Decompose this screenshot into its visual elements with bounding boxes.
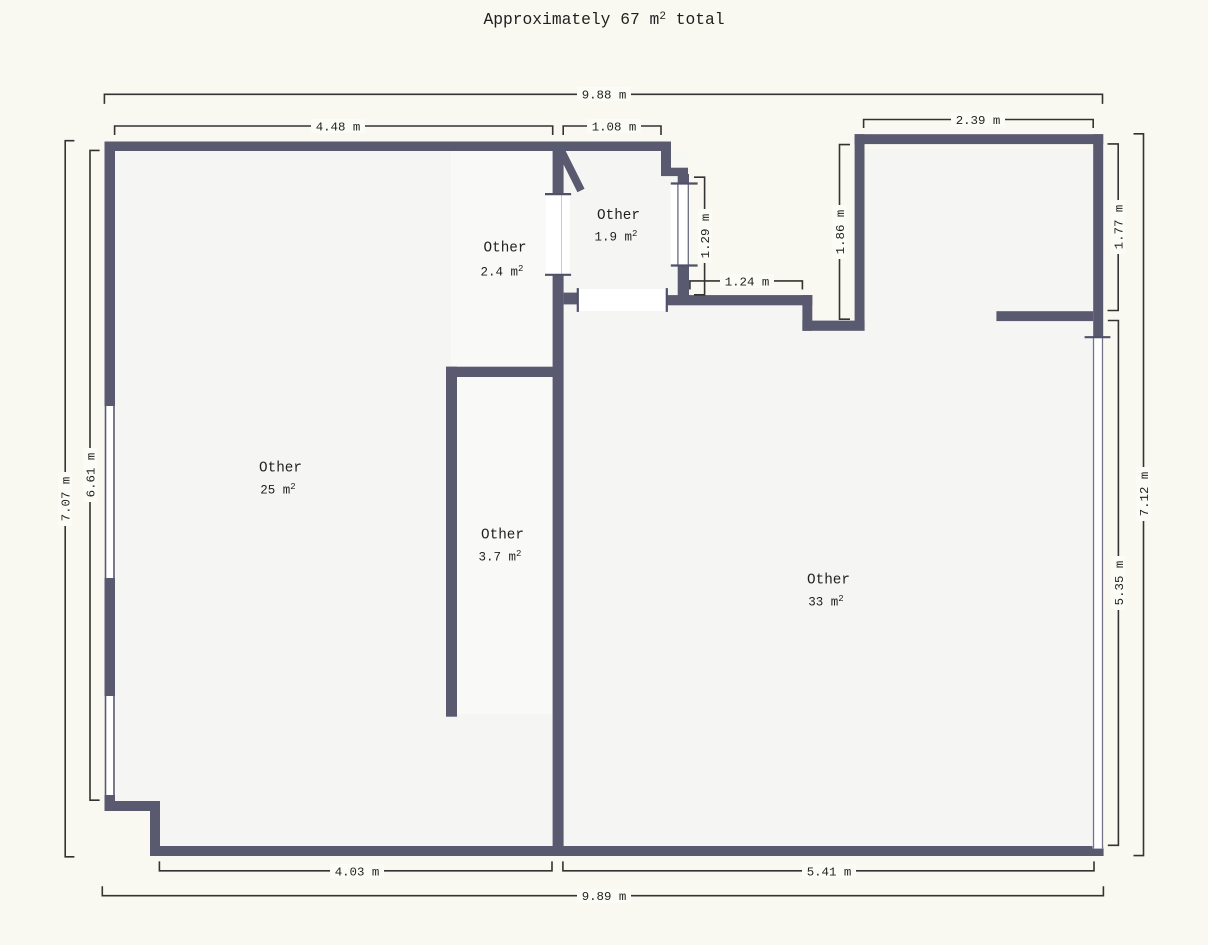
svg-text:9.88 m: 9.88 m xyxy=(582,89,627,103)
svg-text:5.41 m: 5.41 m xyxy=(807,865,852,879)
svg-text:Other: Other xyxy=(481,528,524,544)
svg-text:Other: Other xyxy=(259,461,302,477)
svg-text:1.77 m: 1.77 m xyxy=(1113,205,1127,250)
svg-text:Approximately 67 m2 total: Approximately 67 m2 total xyxy=(483,10,724,29)
svg-text:1.86 m: 1.86 m xyxy=(834,210,848,255)
svg-text:1.08 m: 1.08 m xyxy=(592,120,637,134)
svg-text:2.4 m2: 2.4 m2 xyxy=(481,264,524,280)
svg-text:4.03 m: 4.03 m xyxy=(335,865,380,879)
svg-text:5.35 m: 5.35 m xyxy=(1113,561,1127,606)
svg-text:Other: Other xyxy=(597,208,640,224)
svg-text:Other: Other xyxy=(484,241,527,257)
svg-text:1.24 m: 1.24 m xyxy=(725,275,770,289)
svg-text:1.9 m2: 1.9 m2 xyxy=(595,229,638,245)
svg-text:6.61 m: 6.61 m xyxy=(84,453,98,498)
svg-text:2.39 m: 2.39 m xyxy=(956,114,1001,128)
svg-text:1.29 m: 1.29 m xyxy=(699,214,713,259)
svg-text:3.7 m2: 3.7 m2 xyxy=(479,549,522,565)
svg-text:7.07 m: 7.07 m xyxy=(60,477,74,522)
svg-text:9.89 m: 9.89 m xyxy=(582,890,627,904)
svg-text:Other: Other xyxy=(807,573,850,589)
svg-text:4.48 m: 4.48 m xyxy=(316,120,361,134)
svg-text:7.12 m: 7.12 m xyxy=(1138,472,1152,517)
